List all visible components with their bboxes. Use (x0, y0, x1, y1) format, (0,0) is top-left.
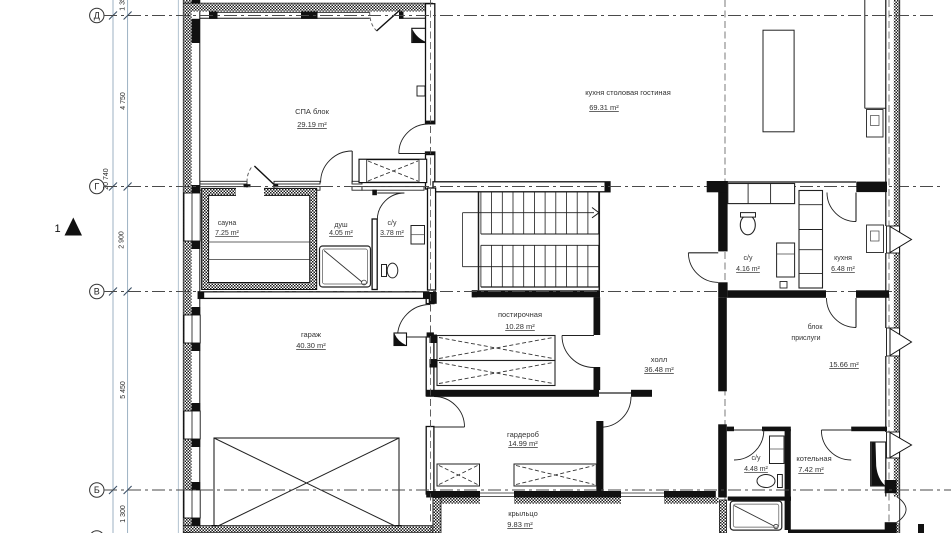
svg-text:кухня: кухня (834, 255, 852, 262)
svg-text:4.48 m²: 4.48 m² (744, 466, 768, 473)
svg-text:гардероб: гардероб (507, 430, 539, 439)
svg-text:кухня столовая гостиная: кухня столовая гостиная (585, 88, 671, 97)
svg-text:69.31 m²: 69.31 m² (589, 103, 619, 112)
svg-text:4 750: 4 750 (120, 92, 127, 110)
svg-text:Б: Б (94, 485, 100, 495)
svg-text:36.48 m²: 36.48 m² (644, 365, 674, 374)
svg-text:29.19 m²: 29.19 m² (297, 120, 327, 129)
svg-text:гараж: гараж (301, 330, 321, 339)
svg-text:Д: Д (94, 11, 100, 21)
svg-text:6.48 m²: 6.48 m² (831, 266, 855, 273)
svg-text:душ: душ (334, 222, 348, 229)
svg-text:котельная: котельная (796, 454, 831, 463)
svg-text:крыльцо: крыльцо (508, 509, 538, 518)
svg-text:постирочная: постирочная (498, 310, 542, 319)
svg-text:Г: Г (94, 182, 99, 192)
svg-text:7.42 m²: 7.42 m² (798, 465, 824, 474)
svg-text:14.99 m²: 14.99 m² (508, 439, 538, 448)
svg-text:прислуги: прислуги (791, 335, 820, 342)
svg-text:5 450: 5 450 (120, 381, 127, 399)
svg-text:1 350: 1 350 (120, 0, 127, 11)
svg-text:15.66 m²: 15.66 m² (829, 360, 859, 369)
svg-text:с/у: с/у (752, 455, 761, 462)
svg-text:с/у: с/у (744, 255, 753, 262)
svg-text:7.25 m²: 7.25 m² (215, 230, 239, 237)
svg-text:9.83 m²: 9.83 m² (507, 520, 533, 529)
svg-text:блок: блок (808, 323, 824, 331)
svg-text:сауна: сауна (218, 220, 237, 227)
svg-text:холл: холл (651, 355, 667, 364)
svg-text:1 300: 1 300 (120, 505, 127, 523)
svg-text:3.78 m²: 3.78 m² (380, 230, 404, 237)
svg-text:СПА блок: СПА блок (295, 107, 329, 116)
svg-text:2 900: 2 900 (119, 231, 126, 249)
svg-text:10.28 m²: 10.28 m² (505, 322, 535, 331)
svg-text:40.30 m²: 40.30 m² (296, 341, 326, 350)
svg-text:В: В (94, 287, 100, 297)
svg-text:1: 1 (54, 223, 60, 235)
svg-text:4.16 m²: 4.16 m² (736, 266, 760, 273)
svg-text:с/у: с/у (388, 220, 397, 227)
svg-text:4.05 m²: 4.05 m² (329, 230, 353, 237)
